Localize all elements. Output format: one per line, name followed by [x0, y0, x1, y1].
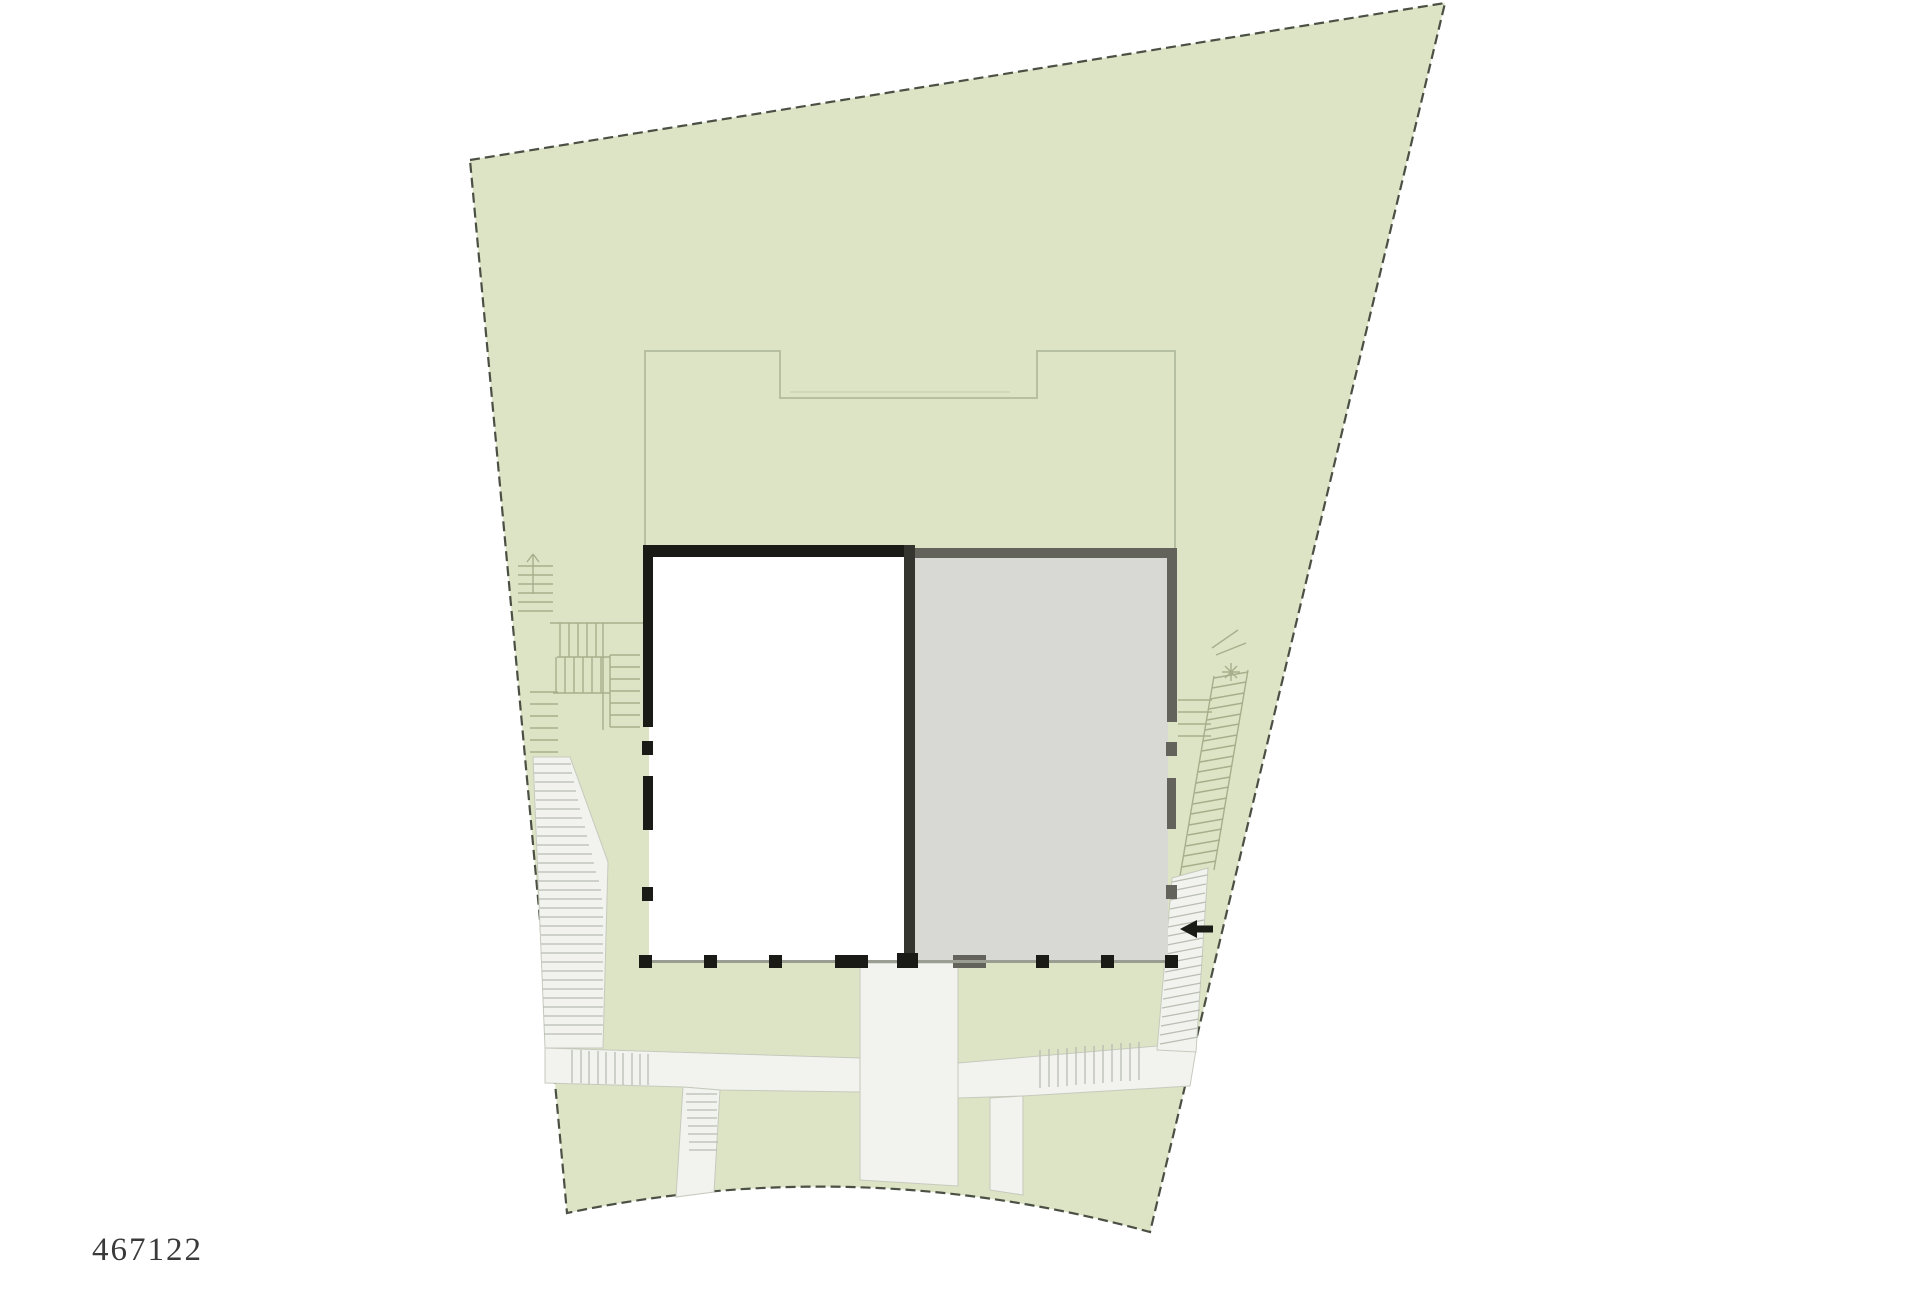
colonnade-post — [1101, 955, 1114, 968]
colonnade-post — [704, 955, 717, 968]
central-path — [860, 963, 958, 1186]
west-west-wall-mid — [643, 776, 653, 830]
west-north-wall — [643, 545, 908, 557]
plan-number-label: 467122 — [92, 1232, 203, 1269]
east-east-wall-upper — [1167, 548, 1177, 722]
colonnade-post — [1165, 955, 1178, 968]
east-east-wall-mid — [1167, 778, 1176, 829]
colonnade-post-divider-foot — [897, 953, 918, 968]
west-wall-door-post-2 — [642, 887, 653, 901]
east-wall-door-post-2 — [1166, 885, 1177, 899]
west-wall-door-post-1 — [642, 741, 653, 755]
colonnade-dash — [835, 955, 868, 968]
building-east — [915, 556, 1168, 962]
party-wall-divider — [904, 545, 915, 965]
building-west — [649, 552, 908, 962]
east-north-wall — [915, 548, 1176, 558]
site-plan-page: 467122 — [0, 0, 1920, 1308]
west-west-wall-upper — [643, 545, 653, 727]
colonnade-post — [1036, 955, 1049, 968]
colonnade-post — [769, 955, 782, 968]
colonnade-post — [639, 955, 652, 968]
east-branch-path — [990, 1096, 1023, 1195]
site-plan-drawing — [0, 0, 1920, 1308]
east-wall-door-post-1 — [1166, 742, 1177, 756]
